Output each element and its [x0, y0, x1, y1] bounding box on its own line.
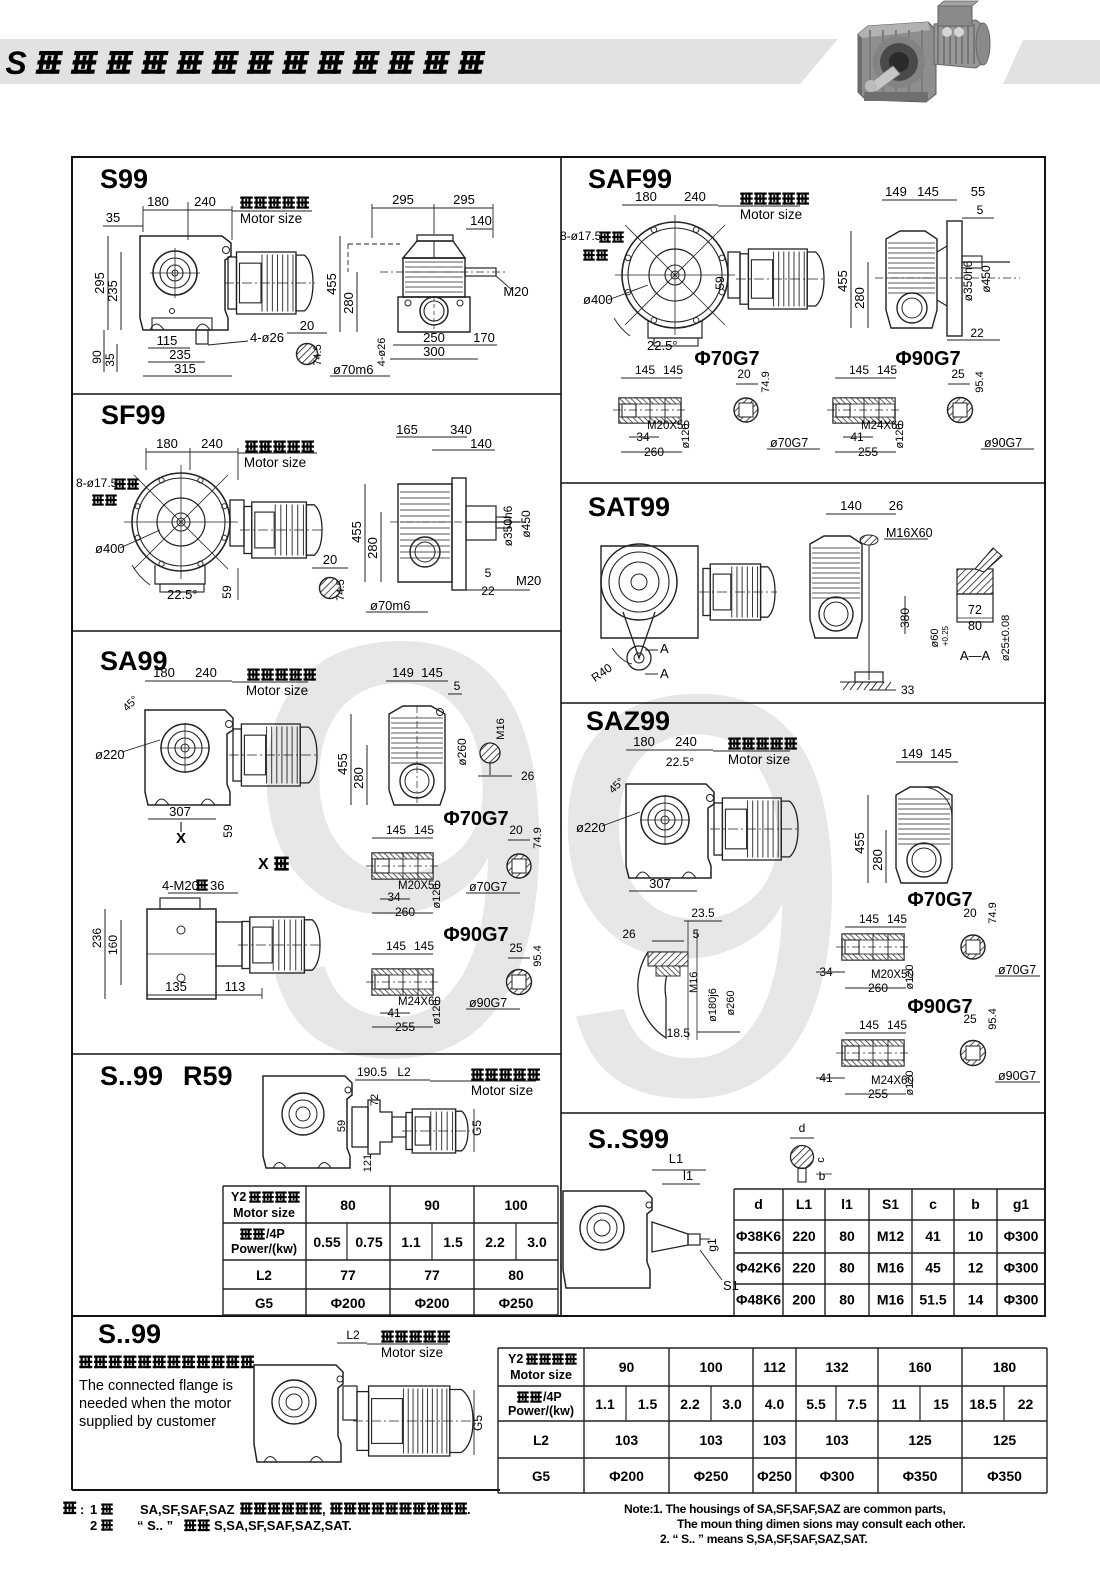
svg-text:145: 145 — [663, 363, 683, 377]
svg-text:Φ300: Φ300 — [820, 1468, 855, 1484]
svg-text:112: 112 — [763, 1359, 786, 1375]
svg-text:315: 315 — [174, 361, 196, 376]
svg-text:132: 132 — [825, 1359, 849, 1375]
svg-text:L2: L2 — [346, 1328, 360, 1342]
svg-text:180: 180 — [147, 194, 169, 209]
svg-text:“ S.. ”: “ S.. ” — [137, 1518, 173, 1533]
svg-text:90: 90 — [424, 1197, 440, 1213]
svg-text:Φ250: Φ250 — [499, 1295, 534, 1311]
svg-text:235: 235 — [169, 347, 191, 362]
svg-text:25: 25 — [951, 367, 965, 381]
svg-text:15: 15 — [933, 1396, 949, 1412]
svg-text:2.2: 2.2 — [680, 1396, 700, 1412]
svg-text:Motor size: Motor size — [728, 752, 790, 767]
svg-text:145: 145 — [877, 363, 897, 377]
svg-text:59: 59 — [221, 824, 235, 838]
svg-text:ø400: ø400 — [95, 541, 125, 556]
svg-text:103: 103 — [825, 1432, 849, 1448]
svg-text:26: 26 — [889, 498, 903, 513]
svg-text:+0.25: +0.25 — [941, 625, 950, 646]
svg-text:455: 455 — [349, 521, 364, 543]
svg-text:80: 80 — [839, 1260, 855, 1276]
svg-text:22.5°: 22.5° — [666, 755, 694, 769]
svg-text:S1: S1 — [882, 1196, 899, 1212]
svg-text:90: 90 — [90, 350, 104, 364]
svg-text:ø450: ø450 — [519, 510, 533, 538]
svg-text:14: 14 — [968, 1291, 984, 1307]
svg-text:455: 455 — [852, 832, 867, 854]
svg-text:ø120: ø120 — [904, 964, 916, 989]
svg-text::: : — [80, 1502, 84, 1517]
svg-text:180: 180 — [993, 1359, 1017, 1375]
svg-text:220: 220 — [792, 1228, 816, 1244]
svg-text:72: 72 — [968, 603, 982, 617]
svg-text:25: 25 — [509, 941, 523, 955]
svg-text:4-ø26: 4-ø26 — [250, 330, 284, 345]
svg-text:Φ38K6: Φ38K6 — [736, 1228, 781, 1244]
svg-text:L2: L2 — [533, 1433, 549, 1448]
svg-text:280: 280 — [341, 292, 356, 314]
svg-text:ø120: ø120 — [680, 423, 692, 448]
svg-text:Φ350: Φ350 — [987, 1468, 1022, 1484]
svg-text:22: 22 — [970, 326, 984, 340]
svg-text:74.5: 74.5 — [312, 344, 324, 365]
svg-text:140: 140 — [470, 436, 492, 451]
svg-text:20: 20 — [737, 367, 751, 381]
svg-text:36: 36 — [210, 878, 224, 893]
svg-text:ø220: ø220 — [95, 747, 125, 762]
svg-text:74.9: 74.9 — [760, 371, 772, 392]
svg-text:4-ø26: 4-ø26 — [376, 338, 388, 367]
svg-text:G5: G5 — [470, 1120, 484, 1136]
svg-text:ø350h6: ø350h6 — [961, 260, 975, 301]
svg-text:L2: L2 — [256, 1268, 272, 1283]
svg-text:Φ42K6: Φ42K6 — [736, 1260, 781, 1276]
svg-text:The moun thing dimen sions may: The moun thing dimen sions may consult e… — [677, 1517, 965, 1531]
svg-text:160: 160 — [106, 935, 120, 955]
svg-text:S,SA,SF,SAF,SAZ,SAT.: S,SA,SF,SAF,SAZ,SAT. — [214, 1518, 352, 1533]
svg-text:200: 200 — [792, 1291, 816, 1307]
svg-text:250: 250 — [423, 330, 445, 345]
svg-text:34: 34 — [387, 890, 401, 904]
svg-text:80: 80 — [968, 619, 982, 633]
svg-text:c: c — [929, 1196, 937, 1212]
svg-text:2. “ S.. ” means S,SA,SF,SAF: 2. “ S.. ” means S,SA,SF,SAF,SAZ,SAT. — [660, 1532, 867, 1546]
svg-text:SAZ99: SAZ99 — [586, 706, 670, 736]
svg-text:ø260: ø260 — [725, 990, 737, 1015]
svg-text:S99: S99 — [100, 164, 148, 194]
svg-text:26: 26 — [622, 927, 636, 941]
svg-text:Φ350: Φ350 — [903, 1468, 938, 1484]
svg-text:380: 380 — [898, 608, 912, 628]
svg-text:S..99: S..99 — [98, 1319, 161, 1349]
svg-text:80: 80 — [839, 1228, 855, 1244]
svg-text:0.75: 0.75 — [355, 1234, 382, 1250]
svg-text:4-M20: 4-M20 — [162, 878, 199, 893]
svg-text:103: 103 — [699, 1432, 723, 1448]
svg-text:59: 59 — [713, 276, 727, 290]
svg-text:115: 115 — [157, 333, 178, 348]
svg-text:g1: g1 — [705, 1238, 719, 1252]
svg-text:180: 180 — [153, 665, 175, 680]
svg-text:Motor size: Motor size — [471, 1083, 533, 1098]
svg-text:Motor size: Motor size — [233, 1206, 295, 1220]
svg-text:5: 5 — [977, 203, 984, 217]
svg-text:M12: M12 — [877, 1228, 904, 1244]
svg-text:Φ300: Φ300 — [1004, 1260, 1039, 1276]
svg-text:,: , — [322, 1502, 326, 1517]
svg-text:Y2: Y2 — [231, 1190, 246, 1204]
svg-text:22: 22 — [481, 584, 495, 598]
svg-text:d: d — [754, 1196, 763, 1212]
svg-text:A—A: A—A — [960, 648, 991, 663]
svg-text:b: b — [971, 1196, 980, 1212]
svg-text:160: 160 — [908, 1359, 932, 1375]
svg-text:145: 145 — [887, 1018, 907, 1032]
svg-text:2: 2 — [90, 1518, 97, 1533]
svg-text:L1: L1 — [669, 1151, 683, 1166]
svg-text:240: 240 — [195, 665, 217, 680]
svg-text:280: 280 — [365, 537, 380, 559]
svg-text:59: 59 — [336, 1120, 348, 1132]
svg-text:1.5: 1.5 — [443, 1234, 463, 1250]
svg-text:G5: G5 — [471, 1415, 485, 1431]
svg-text:ø90G7: ø90G7 — [984, 436, 1022, 450]
svg-text:45: 45 — [925, 1260, 941, 1276]
svg-text:ø120: ø120 — [904, 1070, 916, 1095]
svg-text:5: 5 — [485, 566, 492, 580]
svg-text:103: 103 — [615, 1432, 639, 1448]
svg-text:145: 145 — [930, 746, 952, 761]
svg-text:280: 280 — [870, 849, 885, 871]
svg-text:5: 5 — [454, 679, 461, 693]
svg-text:135: 135 — [165, 979, 187, 994]
svg-text:20: 20 — [963, 906, 977, 920]
svg-text:125: 125 — [993, 1432, 1017, 1448]
svg-text:140: 140 — [470, 213, 492, 228]
svg-text:Φ90G7: Φ90G7 — [443, 924, 508, 946]
svg-text:Φ300: Φ300 — [1004, 1228, 1039, 1244]
svg-text:12: 12 — [968, 1260, 984, 1276]
svg-text:A: A — [660, 641, 669, 656]
svg-text:240: 240 — [675, 734, 697, 749]
svg-text:Motor size: Motor size — [381, 1345, 443, 1360]
svg-text:95.4: 95.4 — [974, 371, 986, 392]
svg-text:149: 149 — [392, 665, 414, 680]
svg-text:190.5: 190.5 — [357, 1065, 387, 1079]
svg-text:77: 77 — [424, 1267, 440, 1283]
svg-text:ø120: ø120 — [431, 999, 443, 1024]
svg-text:M16: M16 — [877, 1260, 904, 1276]
svg-text:121: 121 — [362, 1154, 374, 1172]
svg-text:220: 220 — [792, 1260, 816, 1276]
svg-text:Φ200: Φ200 — [415, 1295, 450, 1311]
svg-text:M20: M20 — [516, 573, 541, 588]
svg-text:45°: 45° — [121, 694, 141, 714]
svg-text:300: 300 — [423, 344, 445, 359]
svg-text:M16: M16 — [688, 972, 700, 993]
svg-text:170: 170 — [473, 330, 495, 345]
svg-text:90: 90 — [619, 1359, 635, 1375]
svg-text:S: S — [5, 45, 27, 81]
svg-text:ø180j6: ø180j6 — [707, 988, 719, 1022]
svg-text:145: 145 — [414, 823, 434, 837]
svg-text:23.5: 23.5 — [691, 906, 715, 920]
svg-text:59: 59 — [220, 585, 234, 599]
svg-text:74.5: 74.5 — [335, 579, 347, 600]
svg-text:M16: M16 — [495, 718, 507, 739]
svg-text:8-ø17.5: 8-ø17.5 — [560, 229, 602, 243]
svg-text:80: 80 — [839, 1291, 855, 1307]
svg-text:113: 113 — [225, 979, 246, 994]
svg-text:165: 165 — [396, 422, 418, 437]
svg-text:G5: G5 — [532, 1469, 551, 1484]
svg-text:455: 455 — [835, 270, 850, 292]
svg-text:260: 260 — [395, 905, 415, 919]
svg-text:l1: l1 — [841, 1196, 853, 1212]
svg-text:80: 80 — [340, 1197, 356, 1213]
svg-text:100: 100 — [504, 1197, 528, 1213]
svg-text:145: 145 — [859, 1018, 879, 1032]
svg-text:145: 145 — [421, 665, 443, 680]
svg-text:145: 145 — [386, 939, 406, 953]
svg-text:Φ200: Φ200 — [609, 1468, 644, 1484]
svg-text:340: 340 — [450, 422, 472, 437]
svg-text:35: 35 — [106, 210, 120, 225]
svg-text:supplied by customer: supplied by customer — [79, 1414, 216, 1430]
svg-text:145: 145 — [414, 939, 434, 953]
svg-text:18.5: 18.5 — [667, 1026, 691, 1040]
svg-text:41: 41 — [925, 1228, 941, 1244]
svg-text:125: 125 — [908, 1432, 932, 1448]
svg-text:35: 35 — [103, 353, 117, 367]
svg-text:ø70G7: ø70G7 — [998, 963, 1036, 977]
svg-text:280: 280 — [852, 287, 867, 309]
svg-text:Y2: Y2 — [508, 1352, 523, 1366]
svg-text:307: 307 — [649, 876, 671, 891]
svg-text:g1: g1 — [1013, 1196, 1030, 1212]
svg-text:10: 10 — [968, 1228, 984, 1244]
svg-text:5.5: 5.5 — [806, 1396, 826, 1412]
svg-text:22.5°: 22.5° — [167, 587, 198, 602]
svg-text:295: 295 — [392, 192, 414, 207]
svg-text:ø60: ø60 — [929, 629, 941, 648]
svg-text:149: 149 — [901, 746, 923, 761]
svg-text:ø70m6: ø70m6 — [370, 598, 410, 613]
svg-text:/4P: /4P — [266, 1227, 285, 1241]
svg-text:307: 307 — [169, 804, 191, 819]
svg-text:180: 180 — [635, 189, 657, 204]
svg-text:8-ø17.5: 8-ø17.5 — [76, 476, 118, 490]
svg-text:72: 72 — [369, 1094, 381, 1106]
svg-text:Φ200: Φ200 — [331, 1295, 366, 1311]
svg-text:S..S99: S..S99 — [588, 1124, 669, 1154]
svg-text:240: 240 — [201, 436, 223, 451]
svg-text:95.4: 95.4 — [987, 1008, 999, 1029]
svg-text:ø70G7: ø70G7 — [770, 436, 808, 450]
svg-text:G5: G5 — [255, 1296, 274, 1311]
svg-text:4.0: 4.0 — [765, 1396, 785, 1412]
svg-text:SA,SF,SAF,SAZ: SA,SF,SAF,SAZ — [140, 1502, 235, 1517]
svg-text:20: 20 — [509, 823, 523, 837]
svg-text:L1: L1 — [796, 1196, 813, 1212]
svg-text:R59: R59 — [183, 1061, 233, 1091]
svg-text:0.55: 0.55 — [313, 1234, 340, 1250]
svg-text:149: 149 — [885, 184, 907, 199]
svg-text:236: 236 — [90, 928, 104, 948]
svg-text:100: 100 — [699, 1359, 723, 1375]
svg-text:3.0: 3.0 — [527, 1234, 547, 1250]
svg-text:Φ70G7: Φ70G7 — [443, 808, 508, 830]
svg-text:Motor size: Motor size — [246, 683, 308, 698]
svg-text:L2: L2 — [397, 1065, 411, 1079]
svg-text:295: 295 — [453, 192, 475, 207]
svg-text:11: 11 — [892, 1396, 907, 1412]
svg-text:X: X — [176, 830, 186, 847]
svg-text:145: 145 — [635, 363, 655, 377]
svg-text:Φ250: Φ250 — [757, 1468, 792, 1484]
svg-text:Motor size: Motor size — [240, 211, 302, 226]
svg-text:ø120: ø120 — [431, 883, 443, 908]
svg-text:235: 235 — [105, 280, 120, 302]
svg-text:Φ48K6: Φ48K6 — [736, 1291, 781, 1307]
svg-text:5: 5 — [693, 927, 700, 941]
svg-text:M16X60: M16X60 — [886, 526, 933, 540]
svg-text:22: 22 — [1018, 1396, 1034, 1412]
svg-text:1.1: 1.1 — [401, 1234, 421, 1250]
svg-text:18.5: 18.5 — [969, 1396, 996, 1412]
svg-text:240: 240 — [194, 194, 216, 209]
svg-text:74.9: 74.9 — [532, 827, 544, 848]
svg-text:ø90G7: ø90G7 — [469, 996, 507, 1010]
svg-text:Motor size: Motor size — [740, 207, 802, 222]
svg-text:455: 455 — [324, 273, 339, 295]
svg-text:9: 9 — [541, 576, 859, 1215]
svg-text:51.5: 51.5 — [919, 1291, 946, 1307]
svg-text:1.1: 1.1 — [595, 1396, 615, 1412]
svg-text:2.2: 2.2 — [485, 1234, 505, 1250]
svg-text:ø90G7: ø90G7 — [998, 1069, 1036, 1083]
svg-text:20: 20 — [300, 318, 314, 333]
svg-text:ø220: ø220 — [576, 820, 606, 835]
svg-text:SAF99: SAF99 — [588, 164, 672, 194]
svg-text:7.5: 7.5 — [847, 1396, 867, 1412]
svg-text:SF99: SF99 — [101, 400, 166, 430]
svg-text:140: 140 — [840, 498, 862, 513]
svg-text:A: A — [660, 666, 669, 681]
svg-text:S..99: S..99 — [100, 1061, 163, 1091]
svg-text:l1: l1 — [683, 1168, 693, 1183]
svg-text:The connected flange is: The connected flange is — [79, 1378, 233, 1394]
svg-text:ø260: ø260 — [455, 738, 469, 766]
svg-text:Note:1. The housings of SA,SF: Note:1. The housings of SA,SF,SAF,SAZ ar… — [624, 1502, 946, 1516]
svg-text:b: b — [819, 1169, 826, 1183]
svg-text:180: 180 — [633, 734, 655, 749]
svg-text:M16: M16 — [877, 1291, 904, 1307]
svg-text:145: 145 — [917, 184, 939, 199]
svg-text:20: 20 — [323, 552, 337, 567]
svg-text:145: 145 — [887, 912, 907, 926]
svg-text:103: 103 — [763, 1432, 787, 1448]
svg-text:25: 25 — [963, 1012, 977, 1026]
svg-text:74.9: 74.9 — [987, 902, 999, 923]
svg-text:1.5: 1.5 — [638, 1396, 658, 1412]
svg-text:ø120: ø120 — [894, 423, 906, 448]
svg-text:ø25±0.08: ø25±0.08 — [1000, 615, 1012, 661]
svg-text:Motor size: Motor size — [244, 455, 306, 470]
svg-text:22.5°: 22.5° — [647, 338, 678, 353]
svg-text:ø70m6: ø70m6 — [333, 362, 373, 377]
svg-text:needed when the motor: needed when the motor — [79, 1396, 232, 1412]
svg-text:Power/(kw): Power/(kw) — [508, 1404, 574, 1418]
svg-text:/4P: /4P — [543, 1390, 562, 1404]
svg-text:c: c — [815, 1157, 827, 1163]
svg-text:ø450: ø450 — [979, 265, 993, 293]
svg-text:280: 280 — [351, 767, 366, 789]
svg-text:ø70G7: ø70G7 — [469, 880, 507, 894]
svg-text:145: 145 — [849, 363, 869, 377]
svg-text:d: d — [799, 1121, 806, 1135]
svg-text:SAT99: SAT99 — [588, 492, 670, 522]
svg-text:77: 77 — [340, 1267, 356, 1283]
svg-text:55: 55 — [971, 184, 985, 199]
svg-text:240: 240 — [684, 189, 706, 204]
svg-text:180: 180 — [156, 436, 178, 451]
svg-text:80: 80 — [508, 1267, 524, 1283]
svg-text:X: X — [258, 856, 269, 873]
svg-text:Φ300: Φ300 — [1004, 1291, 1039, 1307]
svg-text:Motor size: Motor size — [510, 1368, 572, 1382]
svg-text:ø350h6: ø350h6 — [501, 505, 515, 546]
svg-text:95.4: 95.4 — [532, 945, 544, 966]
svg-text:Φ250: Φ250 — [694, 1468, 729, 1484]
svg-text:.: . — [467, 1502, 471, 1517]
svg-text:145: 145 — [386, 823, 406, 837]
svg-text:3.0: 3.0 — [722, 1396, 742, 1412]
svg-text:26: 26 — [521, 769, 535, 783]
svg-text:1: 1 — [90, 1502, 97, 1517]
svg-text:33: 33 — [901, 683, 915, 697]
svg-text:455: 455 — [335, 753, 350, 775]
svg-text:145: 145 — [859, 912, 879, 926]
svg-text:Power/(kw): Power/(kw) — [231, 1242, 297, 1256]
